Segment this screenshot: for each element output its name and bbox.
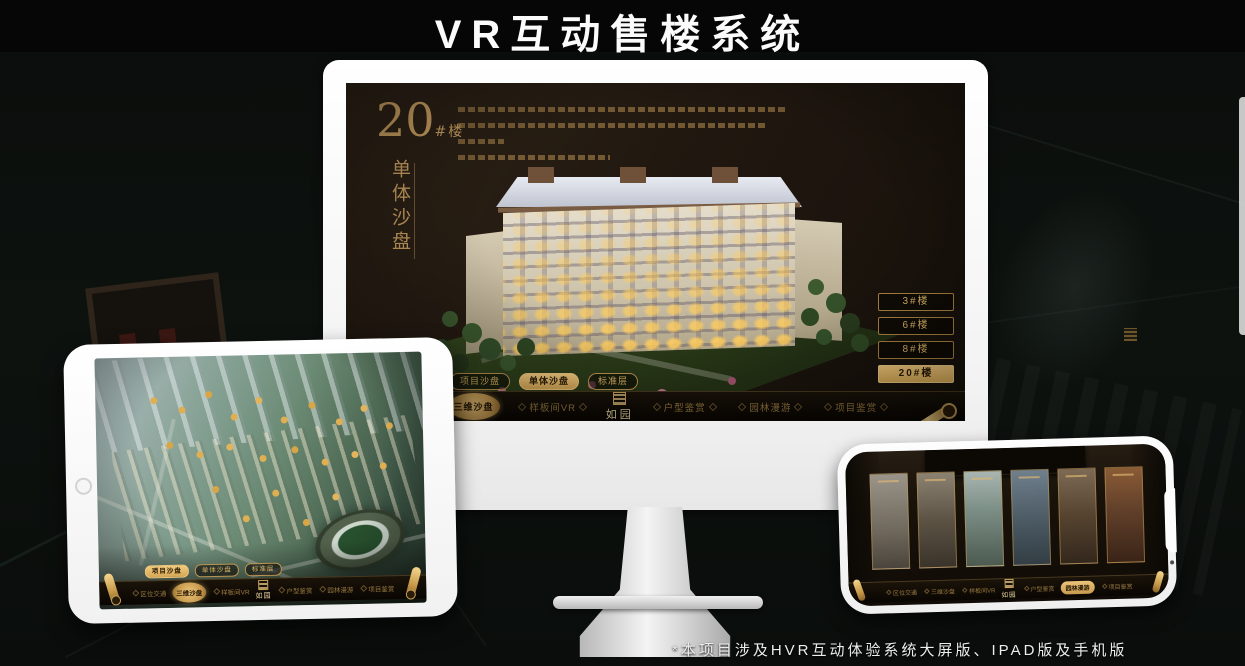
diamond-icon bbox=[1102, 583, 1108, 589]
gallery-card[interactable] bbox=[916, 471, 957, 568]
diamond-icon bbox=[886, 589, 892, 595]
subtab-single-sandbox[interactable]: 单体沙盘 bbox=[195, 563, 239, 577]
nav-item-project-view[interactable]: 项目鉴赏 bbox=[1100, 581, 1132, 591]
nav-item-3d-sandbox-active[interactable]: 三维沙盘 bbox=[172, 582, 206, 603]
gallery-card[interactable] bbox=[1057, 468, 1098, 565]
diamond-icon bbox=[132, 590, 139, 597]
gallery-card[interactable] bbox=[869, 473, 910, 570]
logo-text: 如园 bbox=[256, 591, 272, 601]
nav-item-garden-tour-active[interactable]: 园林漫游 bbox=[1060, 580, 1094, 594]
diamond-icon bbox=[213, 588, 220, 595]
diamond-icon bbox=[278, 587, 285, 594]
footnote-caption: *本项目涉及HVR互动体验系统大屏版、IPAD版及手机版 bbox=[672, 639, 1127, 660]
gallery-card[interactable] bbox=[963, 470, 1004, 567]
nav-item-project-view[interactable]: 项目鉴赏 bbox=[359, 583, 394, 594]
phone-camera-dot bbox=[1170, 560, 1174, 564]
brand-logo: 如园 bbox=[255, 580, 271, 601]
nav-item-model-room-vr[interactable]: 样板间VR bbox=[212, 586, 250, 597]
diamond-icon bbox=[360, 585, 367, 592]
page-title: VR互动售楼系统 bbox=[0, 2, 1245, 60]
nav-item-floorplan-gallery[interactable]: 户型鉴赏 bbox=[1022, 583, 1054, 593]
tablet-home-button[interactable] bbox=[75, 477, 92, 494]
diamond-icon bbox=[924, 588, 930, 594]
phone-notch bbox=[1164, 488, 1177, 552]
tablet-screen: 项目沙盘 单体沙盘 标准层 区位交通 三维沙盘 样板间VR 如园 户型鉴赏 园林… bbox=[94, 352, 426, 610]
nav-item-location-traffic[interactable]: 区位交通 bbox=[131, 587, 166, 598]
background-brand-mark bbox=[1124, 328, 1137, 341]
nav-item-location-traffic[interactable]: 区位交通 bbox=[885, 587, 917, 597]
logo-seal-icon bbox=[258, 580, 268, 590]
logo-seal-icon bbox=[1004, 579, 1013, 588]
phone-bottom-nav: 区位交通 三维沙盘 样板间VR 如园 户型鉴赏 园林漫游 项目鉴赏 bbox=[849, 574, 1169, 604]
gallery-card[interactable] bbox=[1104, 466, 1145, 563]
diamond-icon bbox=[1024, 586, 1030, 592]
subtab-standard-floor[interactable]: 标准层 bbox=[245, 563, 282, 577]
phone-device: 区位交通 三维沙盘 样板间VR 如园 户型鉴赏 园林漫游 项目鉴赏 bbox=[837, 435, 1178, 614]
monitor-stand-base bbox=[553, 596, 763, 609]
right-edge-highlight bbox=[1239, 97, 1245, 335]
nav-item-model-room-vr[interactable]: 样板间VR bbox=[961, 585, 996, 595]
brand-logo: 如园 bbox=[1001, 579, 1017, 599]
nav-item-garden-tour[interactable]: 园林漫游 bbox=[318, 584, 353, 595]
gallery-card[interactable] bbox=[1010, 469, 1051, 566]
tablet-device: 项目沙盘 单体沙盘 标准层 区位交通 三维沙盘 样板间VR 如园 户型鉴赏 园林… bbox=[63, 337, 458, 624]
poster-canvas: VR互动售楼系统 20#楼 单体沙盘 bbox=[0, 0, 1245, 666]
nav-item-floorplan-gallery[interactable]: 户型鉴赏 bbox=[277, 584, 312, 595]
nav-item-3d-sandbox[interactable]: 三维沙盘 bbox=[923, 586, 955, 596]
phone-screen: 区位交通 三维沙盘 样板间VR 如园 户型鉴赏 园林漫游 项目鉴赏 bbox=[845, 444, 1169, 607]
subtab-project-sandbox-active[interactable]: 项目沙盘 bbox=[145, 565, 189, 579]
diamond-icon bbox=[962, 587, 968, 593]
vr-scene-gallery bbox=[846, 466, 1169, 571]
logo-text: 如园 bbox=[1001, 589, 1016, 599]
diamond-icon bbox=[319, 586, 326, 593]
